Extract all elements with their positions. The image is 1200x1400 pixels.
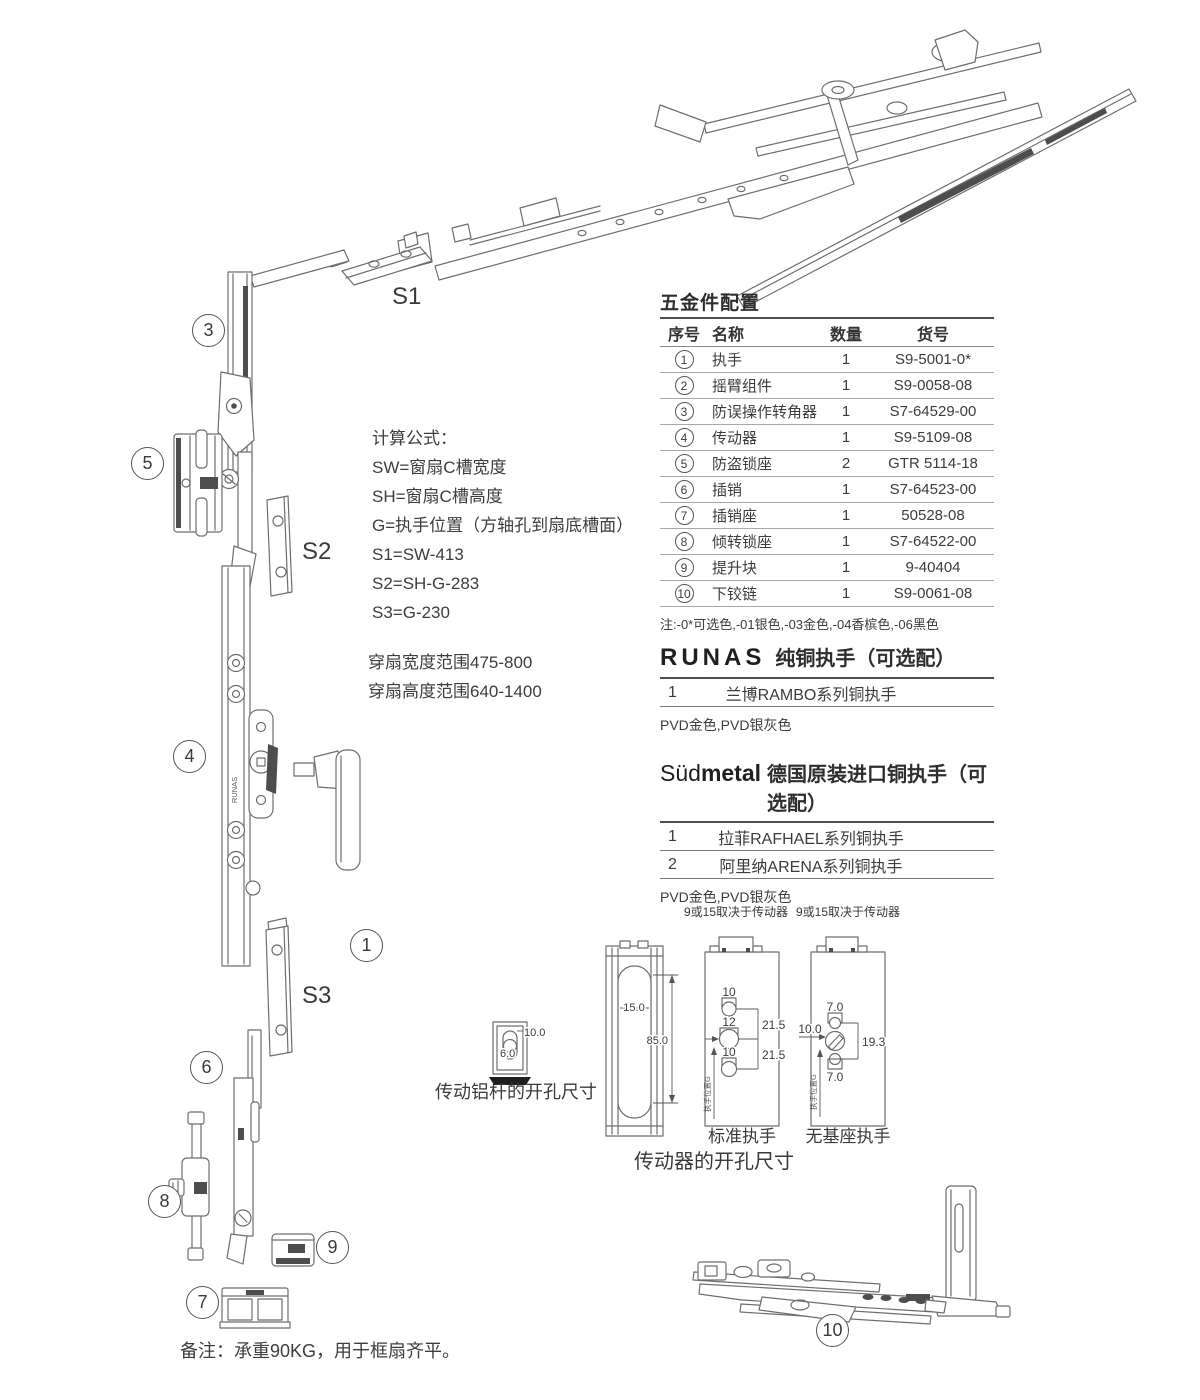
- balloon-10-number: 10: [822, 1320, 842, 1341]
- anti-theft-keeper: [174, 430, 222, 536]
- formula-line: G=执手位置（方轴孔到扇底槽面）: [372, 511, 633, 540]
- drive-gear-bar: RUNAS: [222, 566, 278, 966]
- row-index-badge: 2: [660, 376, 708, 395]
- part-qty: 1: [820, 403, 872, 420]
- table-row: 3 防误操作转角器 1 S7-64529-00: [660, 399, 994, 425]
- balloon-10: 10: [816, 1314, 849, 1347]
- sash-range-block: 穿扇宽度范围475-800 穿扇高度范围640-1400: [368, 648, 542, 706]
- scissor-stay-assembly: [398, 30, 1136, 308]
- balloon-5-number: 5: [142, 453, 152, 474]
- formula-line: S2=SH-G-283: [372, 569, 633, 598]
- part-qty: 1: [820, 481, 872, 498]
- part-code: S7-64522-00: [872, 533, 994, 550]
- runas-logo: RUNAS: [660, 644, 765, 672]
- label-s3: S3: [302, 982, 331, 1010]
- circled-number: 3: [675, 402, 694, 421]
- part-name: 防盗锁座: [708, 453, 820, 474]
- table-row: 8 倾转锁座 1 S7-64522-00: [660, 529, 994, 555]
- espagnolette-bolt: [227, 1030, 261, 1264]
- row-index-badge: 8: [660, 532, 708, 551]
- part-name: 传动器: [708, 427, 820, 448]
- row-index-badge: 6: [660, 480, 708, 499]
- table-row: 10 下铰链 1 S9-0061-08: [660, 581, 994, 607]
- balloon-6-number: 6: [201, 1057, 211, 1078]
- page: RUNAS: [0, 0, 1200, 1400]
- circled-number: 5: [675, 454, 694, 473]
- balloon-8: 8: [148, 1185, 181, 1218]
- part-code: S7-64529-00: [872, 403, 994, 420]
- balloon-3-number: 3: [203, 320, 213, 341]
- option-row: 1 兰博RAMBO系列铜执手: [660, 679, 994, 707]
- row-index-badge: 9: [660, 558, 708, 577]
- option-name: 拉菲RAFHAEL系列铜执手: [700, 825, 922, 849]
- standard-axis-label: 执手位置G: [702, 1076, 712, 1112]
- balloon-8-number: 8: [159, 1191, 169, 1212]
- rod-dim-width: 10.0: [524, 1027, 545, 1039]
- balloon-4-number: 4: [184, 746, 194, 767]
- label-s1: S1: [392, 283, 421, 311]
- part-name: 插销: [708, 479, 820, 500]
- part-qty: 1: [820, 507, 872, 524]
- profile-dim-length: 85.0: [647, 1035, 668, 1047]
- balloon-9-number: 9: [327, 1237, 337, 1258]
- sudmetal-header: Südmetal 德国原装进口铜执手（可选配）: [660, 758, 994, 823]
- latch-keeper: [220, 1288, 290, 1328]
- rod-dim-height: 6.0: [500, 1048, 515, 1060]
- part-qty: 1: [820, 533, 872, 550]
- option-index: 1: [660, 828, 700, 846]
- table-row: 9 提升块 1 9-40404: [660, 555, 994, 581]
- table-header-row: 序号 名称 数量 货号: [660, 319, 994, 347]
- exploded-diagram: RUNAS: [0, 0, 1200, 1400]
- part-qty: 2: [820, 455, 872, 472]
- runas-header: RUNAS 纯铜执手（可选配）: [660, 642, 994, 679]
- part-qty: 1: [820, 585, 872, 602]
- balloon-9: 9: [316, 1231, 349, 1264]
- circled-number: 9: [675, 558, 694, 577]
- balloon-1-number: 1: [361, 935, 371, 956]
- formula-line: SH=窗扇C槽高度: [372, 482, 633, 511]
- table-row: 1 执手 1 S9-5001-0*: [660, 347, 994, 373]
- standard-pitch-top: 21.5: [762, 1018, 786, 1032]
- row-index-badge: 3: [660, 402, 708, 421]
- standard-handle-label: 标准执手: [708, 1127, 776, 1146]
- balloon-6: 6: [190, 1051, 223, 1084]
- part-name: 下铰链: [708, 583, 820, 604]
- nobase-hole-bottom: 7.0: [827, 1070, 844, 1084]
- part-code: S7-64523-00: [872, 481, 994, 498]
- col-header-index: 序号: [660, 321, 708, 345]
- balloon-1: 1: [350, 929, 383, 962]
- option-name: 阿里纳ARENA系列铜执手: [700, 853, 922, 877]
- col-header-qty: 数量: [820, 321, 872, 345]
- part-qty: 1: [820, 429, 872, 446]
- part-name: 插销座: [708, 505, 820, 526]
- bottom-remark: 备注：承重90KG，用于框扇齐平。: [180, 1337, 460, 1366]
- tilt-lock-keeper: [169, 1112, 209, 1260]
- circled-number: 2: [675, 376, 694, 395]
- formula-line: S1=SW-413: [372, 540, 633, 569]
- formula-title: 计算公式：: [372, 424, 633, 453]
- sudmetal-logo-light: Süd: [660, 760, 701, 786]
- rod-hole-diagram: 10.0 6.0 传动铝杆的开孔尺寸: [435, 1022, 597, 1102]
- sudmetal-title: 德国原装进口铜执手（可选配）: [767, 758, 994, 816]
- option-index: 2: [660, 856, 700, 874]
- standard-hole-bottom: 10: [722, 1045, 736, 1059]
- row-index-badge: 7: [660, 506, 708, 525]
- balloon-7: 7: [186, 1286, 219, 1319]
- balloon-5: 5: [131, 447, 164, 480]
- formula-block: 计算公式： SW=窗扇C槽宽度 SH=窗扇C槽高度 G=执手位置（方轴孔到扇底槽…: [372, 424, 633, 627]
- row-index-badge: 10: [660, 584, 708, 603]
- sudmetal-logo: Südmetal: [660, 760, 761, 787]
- circled-number: 6: [675, 480, 694, 499]
- nobase-hole-top: 7.0: [827, 1000, 844, 1014]
- circled-number: 10: [675, 584, 694, 603]
- runas-title: 纯铜执手（可选配）: [775, 642, 955, 671]
- part-code: S9-5109-08: [872, 429, 994, 446]
- part-qty: 1: [820, 377, 872, 394]
- standard-hole-top: 10: [722, 985, 736, 999]
- driver-drilling-section-label: 传动器的开孔尺寸: [634, 1150, 794, 1173]
- part-name: 倾转锁座: [708, 531, 820, 552]
- circled-number: 8: [675, 532, 694, 551]
- profile-dim-slot: 15.0: [623, 1002, 644, 1014]
- balloon-7-number: 7: [197, 1292, 207, 1313]
- hardware-config-section: 五金件配置 序号 名称 数量 货号 1 执手 1 S9-5001-0* 2 摇臂…: [660, 288, 994, 633]
- nobase-handle-label: 无基座执手: [806, 1127, 891, 1146]
- row-index-badge: 5: [660, 454, 708, 473]
- part-qty: 1: [820, 351, 872, 368]
- part-qty: 1: [820, 559, 872, 576]
- option-row: 2 阿里纳ARENA系列铜执手: [660, 851, 994, 879]
- rod-diagram-label: 传动铝杆的开孔尺寸: [435, 1082, 597, 1102]
- sudmetal-finish-note: PVD金色,PVD银灰色: [660, 887, 994, 907]
- standard-handle-diagram: 9或15取决于传动器 10 12 10 21.5 21.5 执手位置G 标准执: [684, 904, 788, 1146]
- s3-plate: [266, 918, 292, 1056]
- nobase-axis-label: 执手位置G: [808, 1074, 818, 1110]
- nobase-dim-left: 10.0: [798, 1022, 822, 1036]
- circled-number: 4: [675, 428, 694, 447]
- part-name: 提升块: [708, 557, 820, 578]
- sash-width-range: 穿扇宽度范围475-800: [368, 648, 542, 677]
- part-code: 50528-08: [872, 507, 994, 524]
- col-header-code: 货号: [872, 321, 994, 345]
- table-row: 6 插销 1 S7-64523-00: [660, 477, 994, 503]
- part-name: 防误操作转角器: [708, 401, 820, 422]
- standard-pitch-bottom: 21.5: [762, 1048, 786, 1062]
- hardware-table-title: 五金件配置: [660, 288, 994, 317]
- part-code: 9-40404: [872, 559, 994, 576]
- balloon-4: 4: [173, 740, 206, 773]
- sudmetal-section: Südmetal 德国原装进口铜执手（可选配） 1 拉菲RAFHAEL系列铜执手…: [660, 758, 994, 907]
- nobase-handle-diagram: 9或15取决于传动器 7.0 7.0 10.0 19.3 执手位置G 无基座执手: [796, 904, 900, 1146]
- formula-line: S3=G-230: [372, 598, 633, 627]
- nobase-pitch: 19.3: [862, 1035, 886, 1049]
- table-row: 4 传动器 1 S9-5109-08: [660, 425, 994, 451]
- part-name: 摇臂组件: [708, 375, 820, 396]
- label-s2: S2: [302, 538, 331, 566]
- table-row: 5 防盗锁座 2 GTR 5114-18: [660, 451, 994, 477]
- color-option-note: 注:-0*可选色,-01银色,-03金色,-04香槟色,-06黑色: [660, 614, 994, 633]
- col-header-name: 名称: [708, 321, 820, 345]
- part-code: S9-0058-08: [872, 377, 994, 394]
- part-code: S9-5001-0*: [872, 351, 994, 368]
- runas-finish-note: PVD金色,PVD银灰色: [660, 715, 994, 735]
- part-code: GTR 5114-18: [872, 455, 994, 472]
- s2-plate: [267, 496, 292, 596]
- runas-section: RUNAS 纯铜执手（可选配） 1 兰博RAMBO系列铜执手 PVD金色,PVD…: [660, 642, 994, 735]
- option-index: 1: [660, 684, 700, 702]
- row-index-badge: 4: [660, 428, 708, 447]
- balloon-3: 3: [192, 314, 225, 347]
- profile-diagram: 15.0 85.0: [606, 941, 678, 1136]
- bar-brand-text: RUNAS: [230, 777, 239, 803]
- circled-number: 1: [675, 350, 694, 369]
- row-index-badge: 1: [660, 350, 708, 369]
- table-row: 7 插销座 1 50528-08: [660, 503, 994, 529]
- hardware-table: 序号 名称 数量 货号 1 执手 1 S9-5001-0* 2 摇臂组件 1 S…: [660, 317, 994, 607]
- bottom-hinge: [693, 1186, 1010, 1324]
- sash-height-range: 穿扇高度范围640-1400: [368, 677, 542, 706]
- window-handle: [294, 750, 360, 870]
- standard-hole-mid: 12: [722, 1015, 736, 1029]
- part-name: 执手: [708, 349, 820, 370]
- circled-number: 7: [675, 506, 694, 525]
- option-row: 1 拉菲RAFHAEL系列铜执手: [660, 823, 994, 851]
- lift-block: [272, 1234, 314, 1266]
- part-code: S9-0061-08: [872, 585, 994, 602]
- option-name: 兰博RAMBO系列铜执手: [700, 681, 922, 705]
- table-row: 2 摇臂组件 1 S9-0058-08: [660, 373, 994, 399]
- sudmetal-logo-bold: metal: [701, 760, 761, 786]
- formula-line: SW=窗扇C槽宽度: [372, 453, 633, 482]
